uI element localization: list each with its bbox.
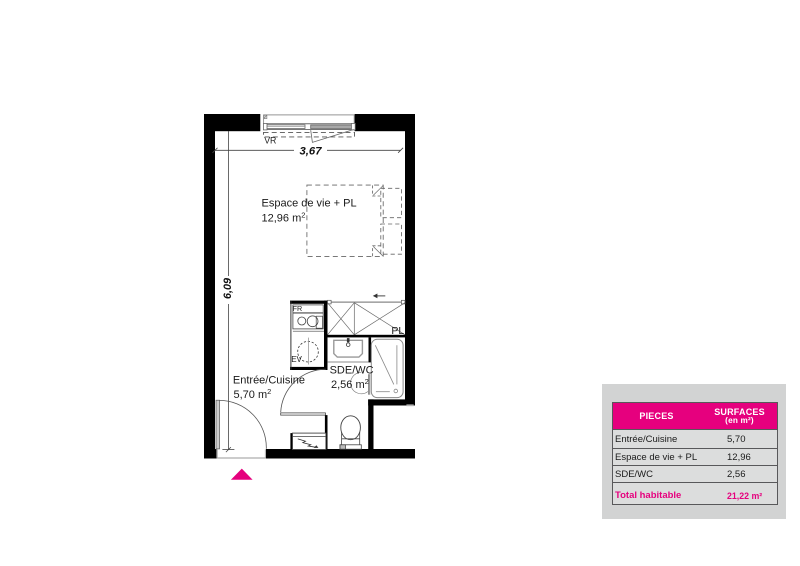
svg-text:VR: VR	[264, 136, 276, 146]
svg-text:2,56 m2: 2,56 m2	[331, 377, 369, 391]
svg-text:6,09: 6,09	[222, 278, 234, 299]
svg-text:Espace de vie + PL: Espace de vie + PL	[262, 198, 357, 210]
svg-text:EV: EV	[291, 355, 302, 364]
svg-text:Entrée/Cuisine: Entrée/Cuisine	[233, 374, 305, 386]
svg-text:5,70 m2: 5,70 m2	[234, 387, 272, 401]
svg-text:12,96 m2: 12,96 m2	[262, 211, 306, 225]
svg-text:FR: FR	[293, 304, 303, 313]
svg-text:SDE/WC: SDE/WC	[330, 365, 374, 377]
svg-text:3,67: 3,67	[300, 145, 323, 157]
